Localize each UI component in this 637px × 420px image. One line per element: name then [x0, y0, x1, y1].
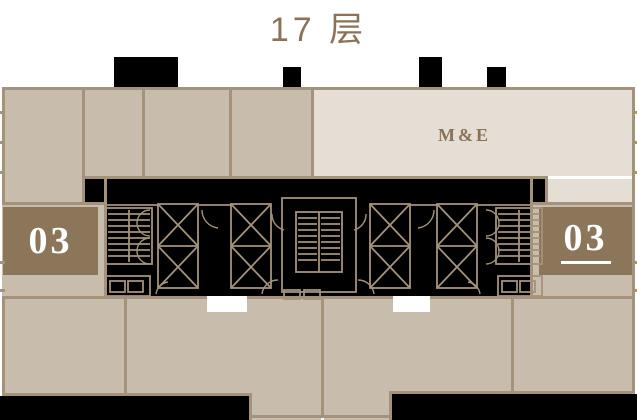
dimension-tick: [632, 141, 637, 144]
dimension-tick: [632, 111, 637, 114]
dimension-tick: [0, 111, 5, 114]
dimension-tick: [0, 261, 5, 264]
me-room-label: M&E: [438, 125, 491, 146]
floor-plan: 17 层 M&E 03: [0, 0, 637, 420]
unit-number-selected: 03: [561, 219, 611, 264]
wall-opening: [393, 296, 430, 312]
room: [324, 299, 511, 393]
dimension-tick: [0, 141, 5, 144]
room: [145, 90, 229, 176]
room: [514, 299, 632, 391]
wall: [545, 179, 548, 202]
wall-opening: [207, 296, 247, 312]
unit-03-left[interactable]: 03: [3, 207, 98, 275]
roof-shaft: [487, 67, 506, 88]
unit-03-right[interactable]: 03: [539, 207, 632, 275]
room: [85, 90, 142, 176]
core-wall-left: [104, 179, 107, 296]
room: [232, 90, 311, 176]
wall: [85, 176, 548, 179]
core-wall-right: [530, 179, 533, 296]
wall: [2, 296, 635, 299]
room: [127, 299, 321, 393]
outer-wall-right: [632, 87, 635, 391]
void-area: [392, 394, 637, 420]
room: [5, 299, 124, 393]
room: [5, 90, 82, 202]
wall: [252, 415, 389, 418]
roof-shaft: [283, 67, 301, 88]
dimension-tick: [632, 289, 637, 292]
roof-shaft: [114, 57, 178, 88]
dimension-tick: [0, 289, 5, 292]
dimension-tick: [0, 171, 5, 174]
dimension-tick: [632, 261, 637, 264]
me-room-extension: [548, 179, 632, 202]
unit-number: 03: [29, 222, 73, 260]
floor-title: 17 层: [0, 2, 637, 51]
dimension-tick: [632, 171, 637, 174]
roof-shaft: [419, 57, 442, 88]
void-area: [0, 396, 249, 420]
wall: [321, 299, 324, 415]
